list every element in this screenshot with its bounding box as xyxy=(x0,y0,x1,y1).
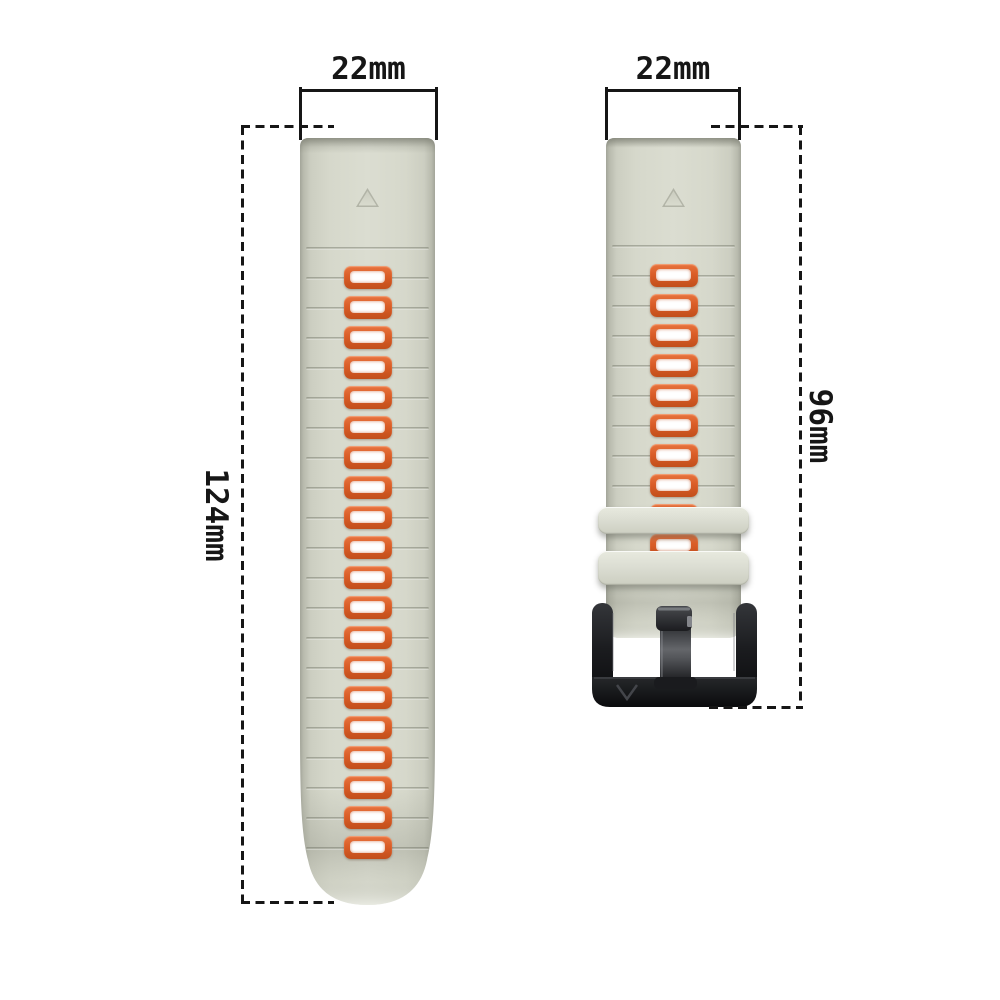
band-hole xyxy=(656,299,691,311)
band-hole-slot xyxy=(650,444,698,467)
band-hole xyxy=(656,479,691,491)
band-hole-slot xyxy=(344,356,392,379)
right-length-dimension-label: 96mm xyxy=(803,326,837,526)
band-hole xyxy=(350,631,385,643)
band-hole-slot xyxy=(650,264,698,287)
left-band xyxy=(300,138,435,905)
band-hole-slot xyxy=(344,386,392,409)
band-hole xyxy=(350,571,385,583)
band-hole xyxy=(350,721,385,733)
left-length-extension-bottom xyxy=(241,901,334,904)
right-width-dimension-line xyxy=(605,89,741,92)
band-hole-slot xyxy=(650,474,698,497)
right-width-dimension-label: 22mm xyxy=(605,52,741,86)
band-hole xyxy=(350,451,385,463)
band-hole xyxy=(350,541,385,553)
band-hole-slot xyxy=(344,626,392,649)
band-hole xyxy=(656,449,691,461)
band-hole xyxy=(350,691,385,703)
band-hole-slot xyxy=(344,596,392,619)
left-width-dimension-label: 22mm xyxy=(299,52,438,86)
band-hole xyxy=(350,391,385,403)
band-top-edge xyxy=(300,138,435,147)
left-length-dimension-label: 124mm xyxy=(199,415,233,615)
right-width-tick-end xyxy=(738,87,741,140)
band-hole-slot xyxy=(650,384,698,407)
band-hole xyxy=(656,269,691,281)
band-hole xyxy=(350,601,385,613)
band-hole-slot xyxy=(344,296,392,319)
band-hole-slot xyxy=(344,686,392,709)
band-hole-slot xyxy=(344,416,392,439)
product-size-diagram: 22mm 22mm 124mm 96mm xyxy=(0,0,1000,1000)
buckle-prong-foot xyxy=(654,677,697,689)
band-hole xyxy=(350,481,385,493)
band-hole-slot xyxy=(344,836,392,859)
band-hole xyxy=(656,329,691,341)
band-hole-slot xyxy=(344,506,392,529)
buckle xyxy=(590,601,759,711)
band-top-edge xyxy=(606,138,741,147)
band-hole xyxy=(350,781,385,793)
left-width-tick-end xyxy=(435,87,438,140)
band-keeper-loop xyxy=(598,551,749,585)
buckle-pin-detail xyxy=(687,616,692,627)
right-length-extension-top xyxy=(711,125,803,128)
band-hole xyxy=(350,841,385,853)
band-hole xyxy=(350,361,385,373)
buckle-prong-stem xyxy=(660,625,691,679)
band-hole xyxy=(350,331,385,343)
band-hole-slot xyxy=(344,566,392,589)
band-hole xyxy=(350,511,385,523)
right-width-tick-start xyxy=(605,87,608,140)
band-hole xyxy=(656,389,691,401)
band-hole xyxy=(350,811,385,823)
band-hole-slot xyxy=(650,414,698,437)
band-hole-slot xyxy=(344,716,392,739)
band-hole xyxy=(656,419,691,431)
band-hole-slot xyxy=(344,746,392,769)
band-hole-slot xyxy=(344,446,392,469)
band-keeper-loop xyxy=(598,507,749,534)
band-hole-slot xyxy=(344,326,392,349)
left-width-tick-start xyxy=(299,87,302,140)
band-hole xyxy=(350,751,385,763)
left-length-dimension-line xyxy=(241,126,244,904)
band-hole xyxy=(350,421,385,433)
band-hole-slot xyxy=(344,266,392,289)
band-hole xyxy=(656,359,691,371)
band-hole-slot xyxy=(650,294,698,317)
band-hole xyxy=(350,271,385,283)
right-length-extension-bottom xyxy=(709,706,803,709)
band-hole-slot xyxy=(344,806,392,829)
band-hole xyxy=(350,661,385,673)
band-hole-slot xyxy=(650,324,698,347)
band-hole-slot xyxy=(344,536,392,559)
left-length-extension-top xyxy=(241,125,334,128)
band-groove xyxy=(306,247,429,250)
band-hole xyxy=(350,301,385,313)
band-hole xyxy=(656,539,691,551)
left-width-dimension-line xyxy=(299,89,438,92)
band-hole-slot xyxy=(344,656,392,679)
band-hole-slot xyxy=(344,776,392,799)
band-groove xyxy=(612,245,735,248)
band-hole-slot xyxy=(650,354,698,377)
band-hole-slot xyxy=(344,476,392,499)
